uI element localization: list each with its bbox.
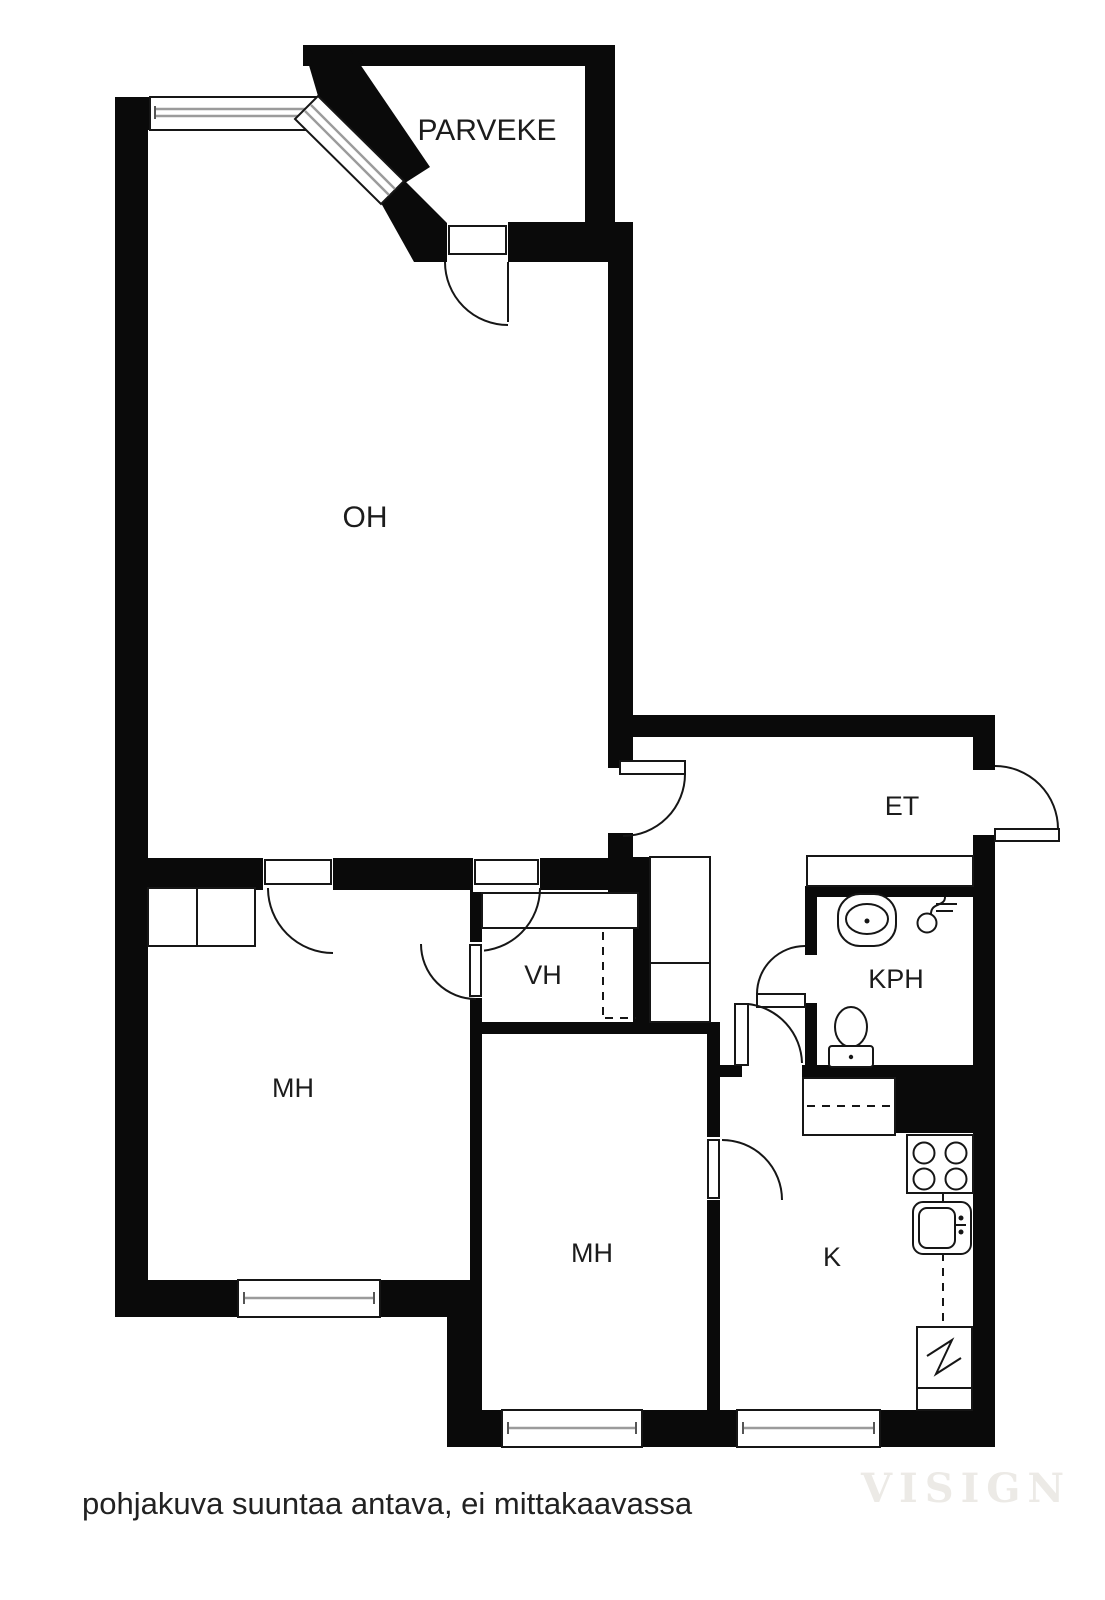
vh-shelf: [482, 893, 638, 1018]
visign-watermark: VISIGN: [860, 1465, 1071, 1512]
stove-icon: [907, 1135, 973, 1193]
disclaimer-caption: pohjakuva suuntaa antava, ei mittakaavas…: [82, 1486, 693, 1521]
label-mh-left: MH: [272, 1073, 314, 1103]
kph-door: [757, 946, 819, 1007]
vh-door-from-mh: [421, 942, 484, 999]
label-k: K: [823, 1242, 841, 1272]
windows: [150, 96, 880, 1447]
floor-plan-drawing: PARVEKE OH ET VH KPH MH MH K pohjakuva s…: [0, 0, 1105, 1600]
refrigerator-icon: [917, 1327, 972, 1410]
mh-left-window: [238, 1280, 380, 1317]
kitchen-door: [735, 1004, 802, 1079]
balcony-door: [445, 220, 508, 325]
walls: [115, 45, 995, 1447]
bedroom-wardrobe: [148, 888, 255, 946]
entry-door: [971, 766, 1059, 841]
mh-middle-window: [502, 1410, 642, 1447]
counter-icon: [803, 1078, 895, 1135]
label-et: ET: [885, 791, 920, 821]
shower-mixer-icon: [918, 897, 958, 933]
label-parveke: PARVEKE: [418, 114, 557, 147]
floor-plan-page: PARVEKE OH ET VH KPH MH MH K pohjakuva s…: [0, 0, 1105, 1600]
toilet-icon: [829, 1007, 873, 1067]
label-mh-middle: MH: [571, 1238, 613, 1268]
mh-left-door: [263, 856, 333, 953]
kitchen-window: [737, 1410, 880, 1447]
doors: [263, 220, 1059, 1200]
label-vh: VH: [524, 960, 562, 990]
label-oh: OH: [343, 501, 388, 534]
mh-kitchen-door: [705, 1137, 782, 1200]
entry-shelf: [807, 856, 973, 886]
hall-closets: [650, 857, 710, 1022]
oh-hall-door: [606, 761, 685, 836]
kitchen-sink-icon: [913, 1202, 971, 1254]
label-kph: KPH: [868, 964, 924, 994]
oh-top-window: [150, 97, 317, 130]
sink-icon: [838, 894, 896, 946]
